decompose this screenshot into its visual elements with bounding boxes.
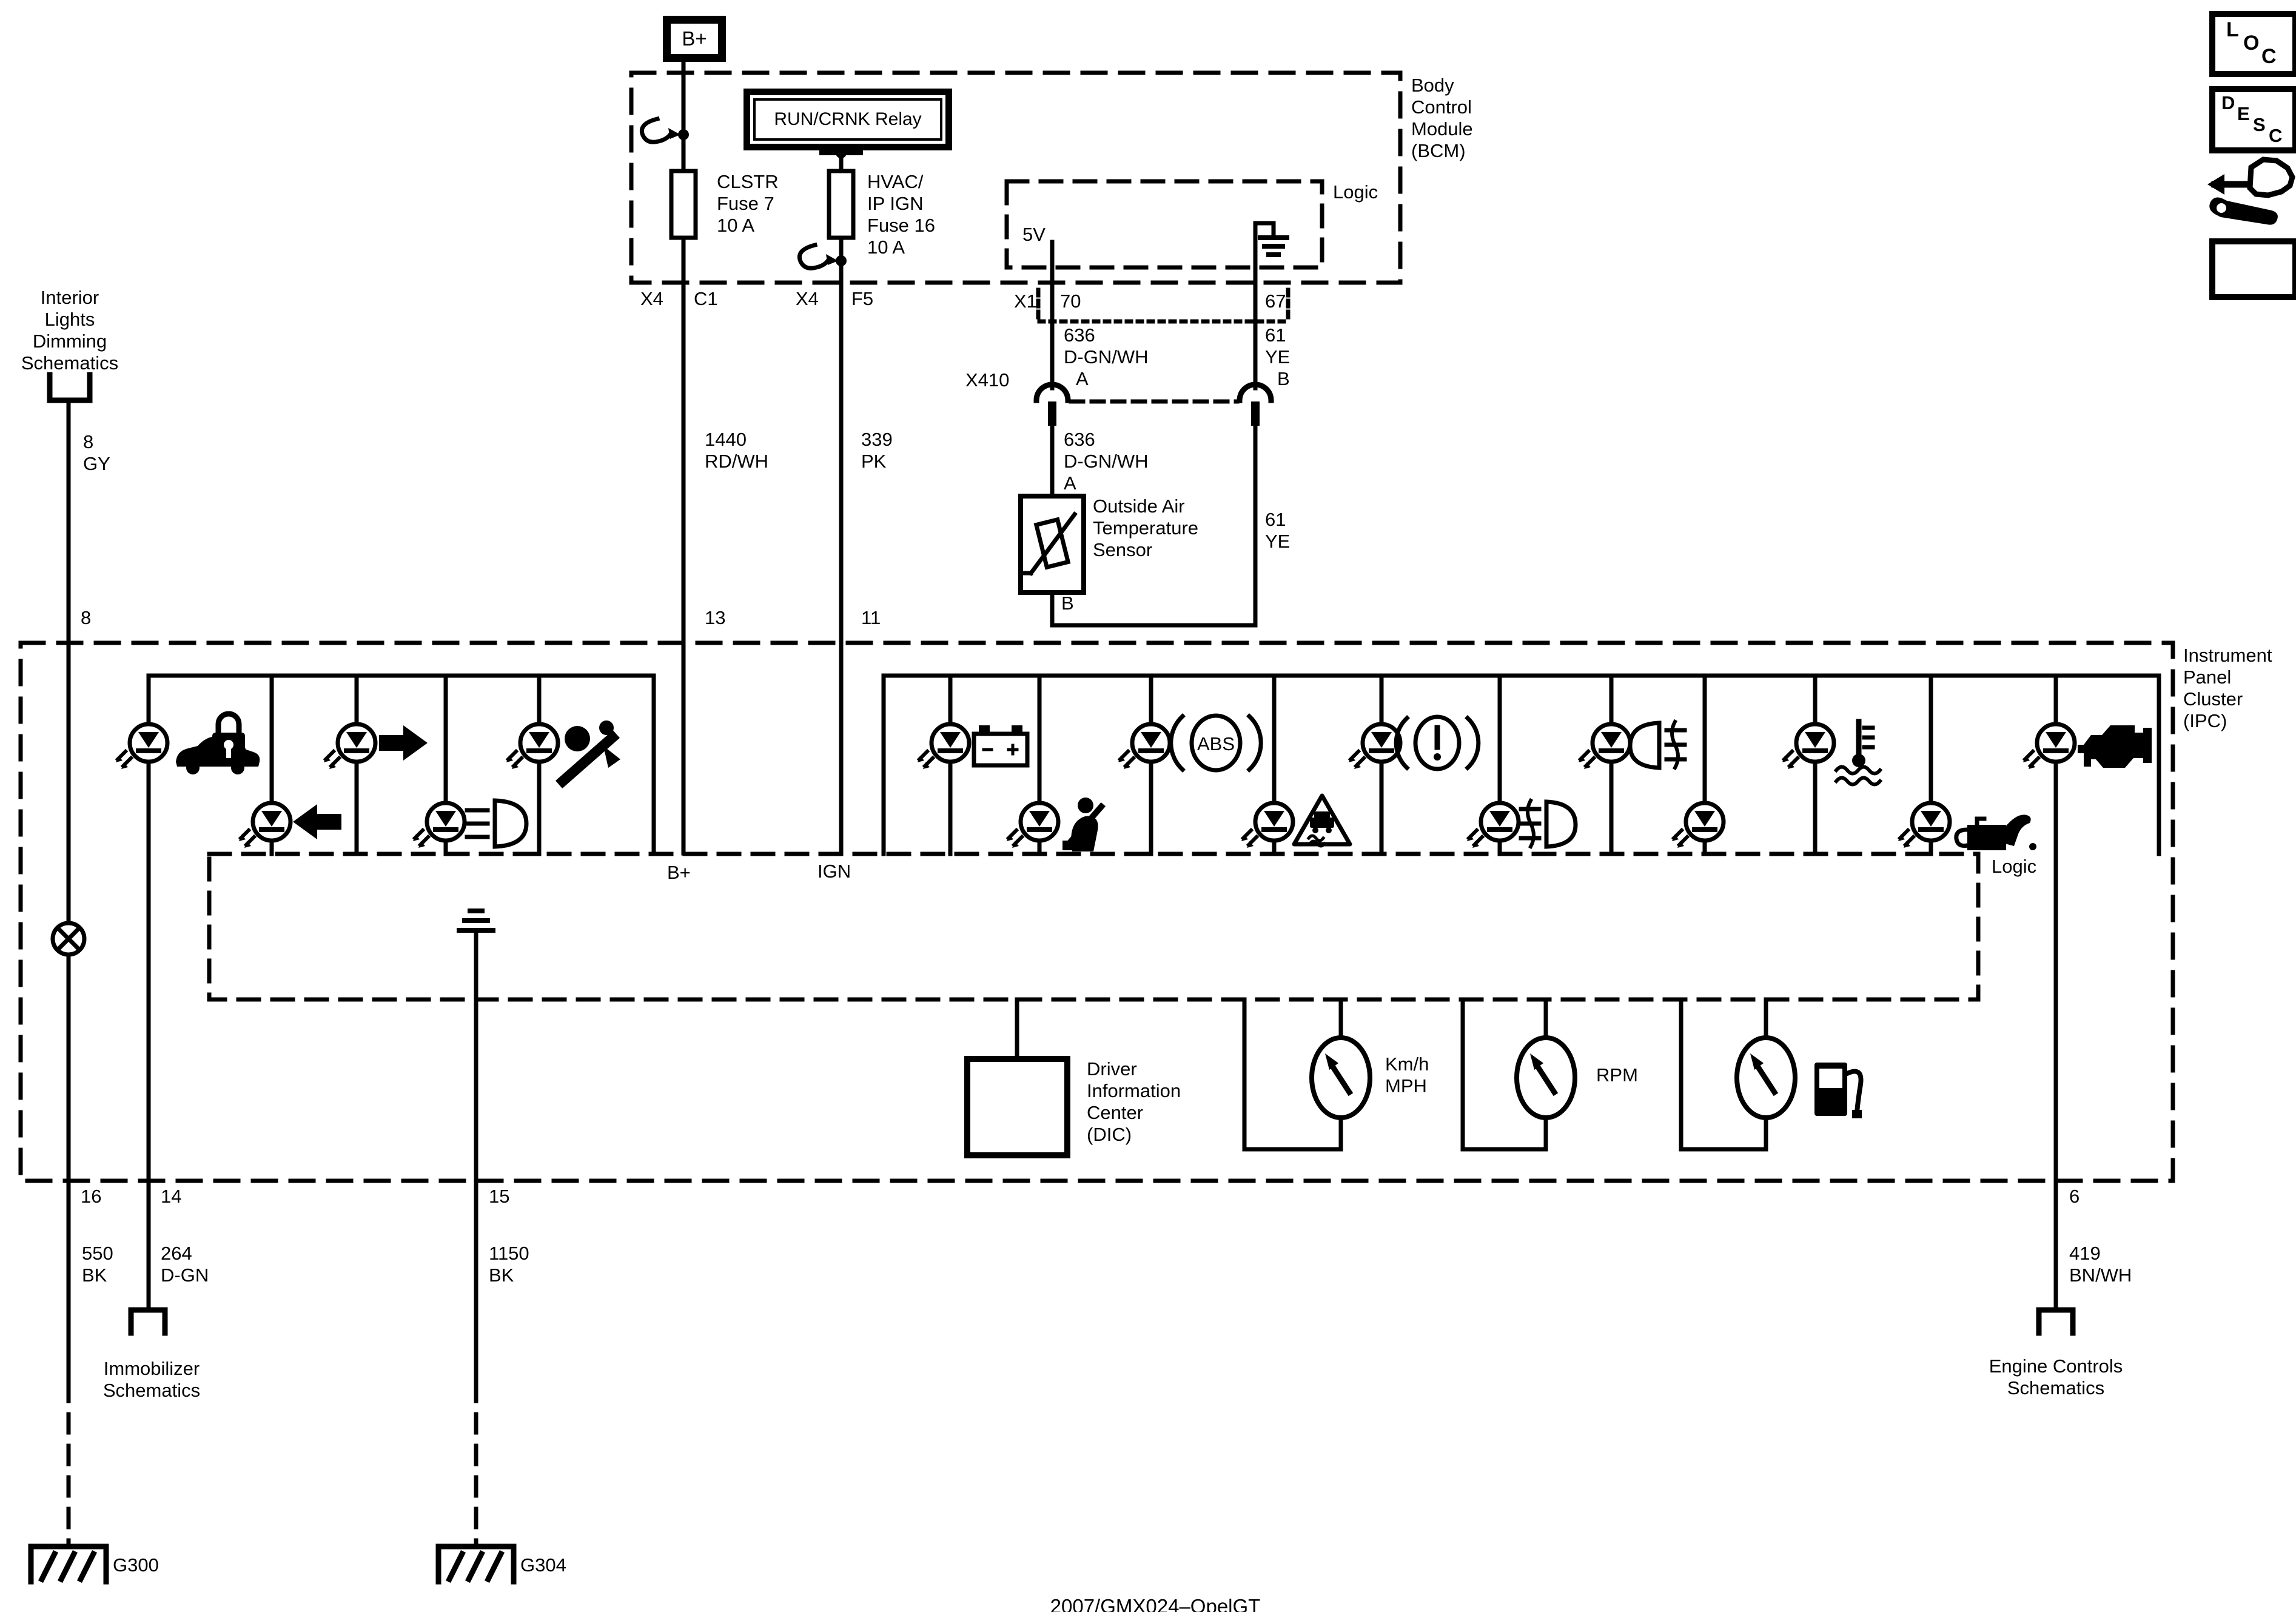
immobilizer-ref-label: Immobilizer bbox=[104, 1357, 200, 1380]
pin-67-label: 67 bbox=[1265, 290, 1286, 312]
x410-connector-icon bbox=[1036, 385, 1271, 426]
airbag-icon bbox=[563, 720, 620, 781]
oil-pressure-icon bbox=[1956, 814, 2036, 850]
ipc-pin-6-label: 6 bbox=[2069, 1185, 2079, 1207]
engine-controls-offpage-bracket-icon bbox=[2039, 1310, 2073, 1333]
ipc-label: Panel bbox=[2183, 666, 2231, 688]
left-turn-icon bbox=[293, 804, 341, 839]
circuit-61-color: YE bbox=[1265, 530, 1290, 552]
seatbelt-led bbox=[1007, 803, 1058, 848]
desc-letter-d: D bbox=[2221, 92, 2235, 114]
circuit-61-color: YE bbox=[1265, 346, 1290, 368]
fuse-clstr-label: Fuse 7 bbox=[717, 192, 774, 215]
bcm-label: Module bbox=[1411, 118, 1473, 140]
speed-gauge-label: Km/h bbox=[1385, 1053, 1429, 1075]
interior-offpage-bracket-icon bbox=[50, 375, 90, 400]
circuit-264-color: D-GN bbox=[161, 1264, 209, 1286]
bcm-logic-ground-icon bbox=[1260, 238, 1287, 255]
b-plus-power-box: B+ bbox=[663, 16, 726, 62]
coolant-temperature-icon bbox=[1836, 722, 1880, 785]
dic-label: (DIC) bbox=[1087, 1123, 1132, 1146]
circuit-61-number: 61 bbox=[1265, 324, 1286, 346]
fuel-pump-icon bbox=[1814, 1063, 1862, 1118]
sensor-pin-a-label: A bbox=[1064, 472, 1076, 494]
front-fog-icon bbox=[1630, 722, 1685, 768]
x410-label: X410 bbox=[965, 369, 1009, 391]
ipc-pin-16-label: 16 bbox=[81, 1185, 101, 1207]
interior-lights-label: Dimming bbox=[33, 330, 107, 352]
immobilizer-offpage-bracket-icon bbox=[131, 1310, 165, 1333]
pin-70-label: 70 bbox=[1060, 290, 1081, 312]
bcm-label: Body bbox=[1411, 74, 1454, 96]
security-indicator-icon bbox=[176, 714, 260, 774]
diagram-linework: ABS bbox=[0, 0, 2296, 1612]
speedometer-gauge bbox=[1244, 999, 1370, 1149]
fuse-clstr-icon bbox=[671, 171, 696, 238]
interior-lights-label: Schematics bbox=[21, 352, 118, 374]
right-lamp-group-wires bbox=[884, 676, 2159, 1310]
dic-label: Center bbox=[1087, 1101, 1143, 1124]
bcm-label: Control bbox=[1411, 96, 1472, 118]
loc-letter-o: O bbox=[2243, 32, 2259, 55]
circuit-339-color: PK bbox=[861, 450, 886, 472]
circuit-550-color: BK bbox=[82, 1264, 107, 1286]
rear-fog-led bbox=[1467, 803, 1519, 848]
front-fog-led bbox=[1579, 724, 1630, 769]
circuit-8-number: 8 bbox=[83, 431, 93, 453]
loc-letter-c: C bbox=[2261, 45, 2277, 69]
circuit-1150-number: 1150 bbox=[489, 1242, 529, 1264]
go-to-box bbox=[2209, 238, 2296, 300]
g304-label: G304 bbox=[520, 1554, 566, 1576]
fuse-hvac-label: 10 A bbox=[867, 236, 905, 258]
engine-controls-ref-label: Schematics bbox=[2007, 1377, 2104, 1399]
desc-letter-s: S bbox=[2253, 114, 2266, 136]
service-info-icon bbox=[2207, 160, 2292, 225]
ipc-logic-label: Logic bbox=[1992, 855, 2036, 878]
pin-x4-label: X4 bbox=[640, 287, 663, 310]
oat-sensor-label: Sensor bbox=[1093, 539, 1152, 561]
loc-letter-l: L bbox=[2226, 18, 2239, 42]
engine-controls-ref-label: Engine Controls bbox=[1989, 1355, 2123, 1377]
g300-ground-icon bbox=[31, 1547, 106, 1582]
circuit-636-color: D-GN/WH bbox=[1064, 450, 1148, 472]
fuse-clstr-label: CLSTR bbox=[717, 170, 779, 193]
run-crnk-relay-box: RUN/CRNK Relay bbox=[744, 89, 952, 150]
brake-warning-led bbox=[1349, 724, 1400, 769]
circuit-1150-color: BK bbox=[489, 1264, 514, 1286]
fuse-clstr-label: 10 A bbox=[717, 214, 754, 237]
ipc-label: Cluster bbox=[2183, 688, 2243, 710]
circuit-550-number: 550 bbox=[82, 1242, 113, 1264]
circuit-1440-number: 1440 bbox=[705, 428, 747, 451]
circuit-264-number: 264 bbox=[161, 1242, 192, 1264]
circuit-636-number: 636 bbox=[1064, 324, 1095, 346]
left-turn-led bbox=[239, 803, 290, 848]
dic-label: Information bbox=[1087, 1080, 1181, 1102]
run-crnk-relay-label: RUN/CRNK Relay bbox=[753, 98, 942, 141]
loc-box: L O C bbox=[2209, 11, 2296, 77]
terminal-b-label: B bbox=[1277, 368, 1290, 390]
dic-box bbox=[967, 1059, 1067, 1155]
ipc-pin-15-label: 15 bbox=[489, 1185, 509, 1207]
ipc-pin-11-label: 11 bbox=[861, 606, 881, 629]
dic-label: Driver bbox=[1087, 1058, 1137, 1080]
plain-indicator-led bbox=[1672, 803, 1724, 848]
pin-c1-label: C1 bbox=[694, 287, 718, 310]
fuse-hvac-label: Fuse 16 bbox=[867, 214, 935, 237]
interior-lights-label: Interior bbox=[41, 286, 99, 309]
pin-f5-label: F5 bbox=[851, 287, 873, 310]
circuit-8-color: GY bbox=[83, 452, 110, 475]
ipc-label: Instrument bbox=[2183, 644, 2272, 667]
fuse-hvac-label: IP IGN bbox=[867, 192, 923, 215]
ipc-label: (IPC) bbox=[2183, 710, 2227, 732]
desc-box: D E S C bbox=[2209, 86, 2296, 153]
ipc-pin-14-label: 14 bbox=[161, 1185, 181, 1207]
oat-sensor-label: Outside Air bbox=[1093, 495, 1185, 517]
ipc-pin-13-label: 13 bbox=[705, 606, 725, 629]
sensor-pin-b-label: B bbox=[1061, 592, 1074, 614]
low-beam-icon bbox=[467, 801, 526, 847]
seatbelt-icon bbox=[1062, 798, 1101, 851]
circuit-339-number: 339 bbox=[861, 428, 893, 451]
g300-label: G300 bbox=[113, 1554, 159, 1576]
check-engine-icon bbox=[2078, 725, 2152, 768]
right-turn-icon bbox=[379, 725, 428, 761]
check-engine-led bbox=[2023, 724, 2075, 769]
ipc-pin-8-label: 8 bbox=[81, 606, 91, 629]
desc-letter-e: E bbox=[2237, 103, 2250, 125]
fuse-hvac-icon bbox=[829, 171, 853, 238]
bcm-label: (BCM) bbox=[1411, 139, 1466, 162]
wiring-diagram-page: ABS B+ RUN/CRNK Relay L O C D E S C CLST… bbox=[0, 0, 2296, 1612]
b-plus-label: B+ bbox=[671, 24, 718, 54]
pin-x4-label: X4 bbox=[796, 287, 819, 310]
traction-control-icon bbox=[1294, 796, 1350, 846]
ipc-ign-node-label: IGN bbox=[817, 860, 851, 882]
traction-led bbox=[1241, 803, 1293, 848]
bcm-logic-label: Logic bbox=[1333, 181, 1378, 203]
fuse-hvac-label: HVAC/ bbox=[867, 170, 923, 193]
interior-lights-label: Lights bbox=[45, 308, 95, 331]
low-beam-led bbox=[413, 803, 465, 848]
brake-warning-icon bbox=[1396, 717, 1479, 769]
circuit-419-number: 419 bbox=[2069, 1242, 2101, 1264]
fuel-gauge bbox=[1681, 999, 1795, 1149]
oat-sensor-label: Temperature bbox=[1093, 517, 1198, 539]
coolant-temp-led bbox=[1782, 724, 1834, 769]
circuit-636-number: 636 bbox=[1064, 428, 1095, 451]
circuit-61-number: 61 bbox=[1265, 508, 1286, 531]
abs-icon-text: ABS bbox=[1197, 733, 1235, 754]
circuit-419-color: BN/WH bbox=[2069, 1264, 2132, 1286]
speed-gauge-label: MPH bbox=[1385, 1075, 1427, 1097]
ipc-logic-ground-icon bbox=[459, 911, 493, 930]
battery-led bbox=[918, 724, 969, 769]
g304-ground-icon bbox=[438, 1547, 514, 1582]
circuit-636-color: D-GN/WH bbox=[1064, 346, 1148, 368]
tachometer-gauge bbox=[1463, 999, 1575, 1149]
battery-icon bbox=[974, 725, 1027, 765]
ipc-bplus-node-label: B+ bbox=[667, 861, 691, 884]
right-turn-led bbox=[324, 724, 375, 769]
immobilizer-ref-label: Schematics bbox=[103, 1379, 200, 1402]
airbag-led bbox=[506, 724, 558, 769]
rpm-gauge-label: RPM bbox=[1596, 1064, 1638, 1086]
bcm-5v-label: 5V bbox=[1022, 223, 1046, 246]
terminal-a-label: A bbox=[1076, 368, 1089, 390]
desc-letter-c: C bbox=[2269, 125, 2282, 147]
abs-led bbox=[1118, 724, 1170, 769]
pin-x1-label: X1 bbox=[1014, 290, 1037, 312]
dimming-lamp-icon bbox=[53, 923, 84, 955]
oil-pressure-led bbox=[1898, 803, 1950, 848]
rear-fog-icon bbox=[1521, 801, 1576, 847]
security-indicator-led bbox=[116, 724, 167, 769]
diagram-footer: 2007/GMX024–OpelGT bbox=[1050, 1595, 1261, 1612]
circuit-1440-color: RD/WH bbox=[705, 450, 768, 472]
